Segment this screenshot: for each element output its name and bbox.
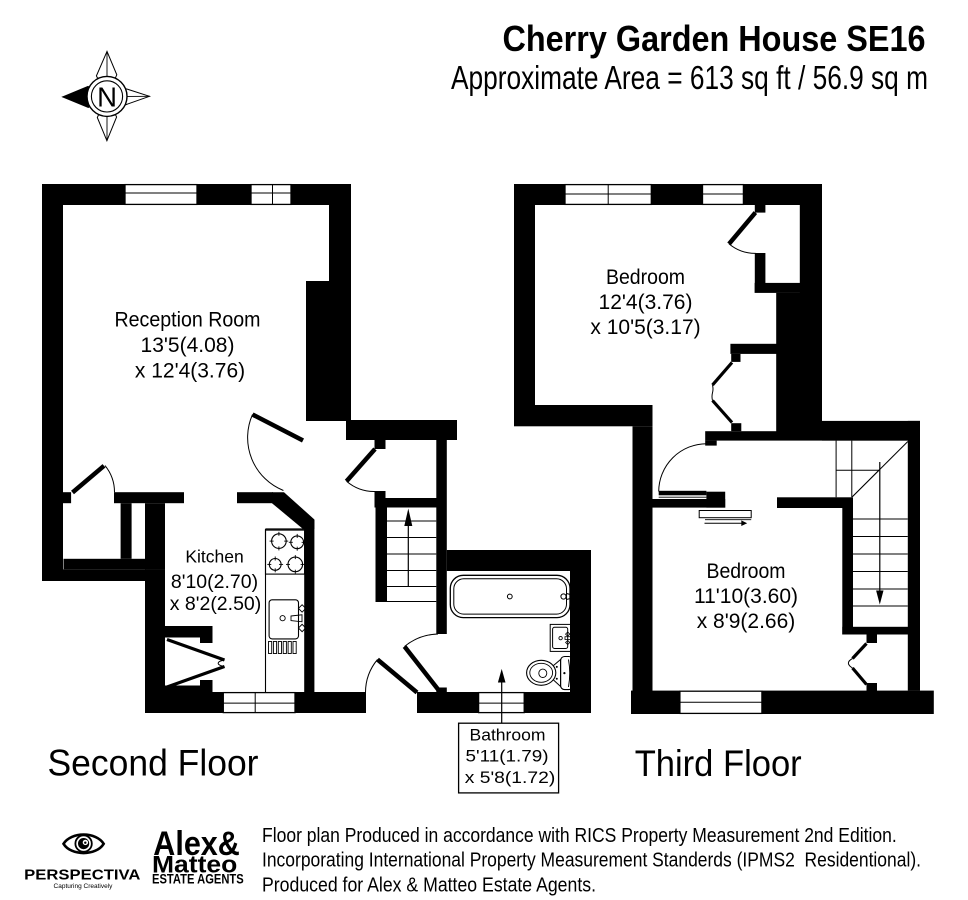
svg-text:ESTATE AGENTS: ESTATE AGENTS [152, 871, 244, 887]
svg-text:x 5'8(1.72): x 5'8(1.72) [465, 768, 556, 787]
svg-text:Cherry Garden House SE16: Cherry Garden House SE16 [503, 18, 926, 59]
svg-text:x 8'9(2.66): x 8'9(2.66) [697, 610, 796, 633]
svg-text:x 10'5(3.17): x 10'5(3.17) [590, 316, 700, 339]
svg-text:12'4(3.76): 12'4(3.76) [599, 291, 693, 314]
svg-text:Capturing Creatively: Capturing Creatively [54, 883, 114, 890]
svg-text:8'10(2.70): 8'10(2.70) [171, 571, 258, 593]
svg-text:Bathroom: Bathroom [470, 726, 546, 745]
svg-text:x 12'4(3.76): x 12'4(3.76) [135, 360, 245, 383]
svg-text:Reception Room: Reception Room [115, 309, 261, 332]
svg-text:13'5(4.08): 13'5(4.08) [141, 334, 235, 357]
svg-text:Incorporating International Pr: Incorporating International Property Mea… [262, 849, 921, 872]
svg-text:5'11(1.79): 5'11(1.79) [466, 747, 549, 766]
svg-text:N: N [97, 82, 117, 113]
svg-text:Produced for Alex & Matteo Est: Produced for Alex & Matteo Estate Agents… [262, 874, 596, 897]
svg-text:Bedroom: Bedroom [707, 560, 786, 583]
svg-text:x 8'2(2.50): x 8'2(2.50) [170, 593, 262, 615]
svg-text:11'10(3.60): 11'10(3.60) [694, 585, 798, 608]
svg-text:Second Floor: Second Floor [48, 743, 259, 784]
svg-text:Floor plan Produced in accorda: Floor plan Produced in accordance with R… [262, 824, 897, 847]
svg-text:Bedroom: Bedroom [606, 266, 685, 289]
svg-text:Kitchen: Kitchen [185, 547, 243, 567]
svg-text:Approximate Area = 613 sq ft /: Approximate Area = 613 sq ft / 56.9 sq m [451, 60, 928, 97]
svg-text:PERSPECTIVA: PERSPECTIVA [24, 868, 141, 884]
svg-text:Third Floor: Third Floor [635, 743, 802, 784]
